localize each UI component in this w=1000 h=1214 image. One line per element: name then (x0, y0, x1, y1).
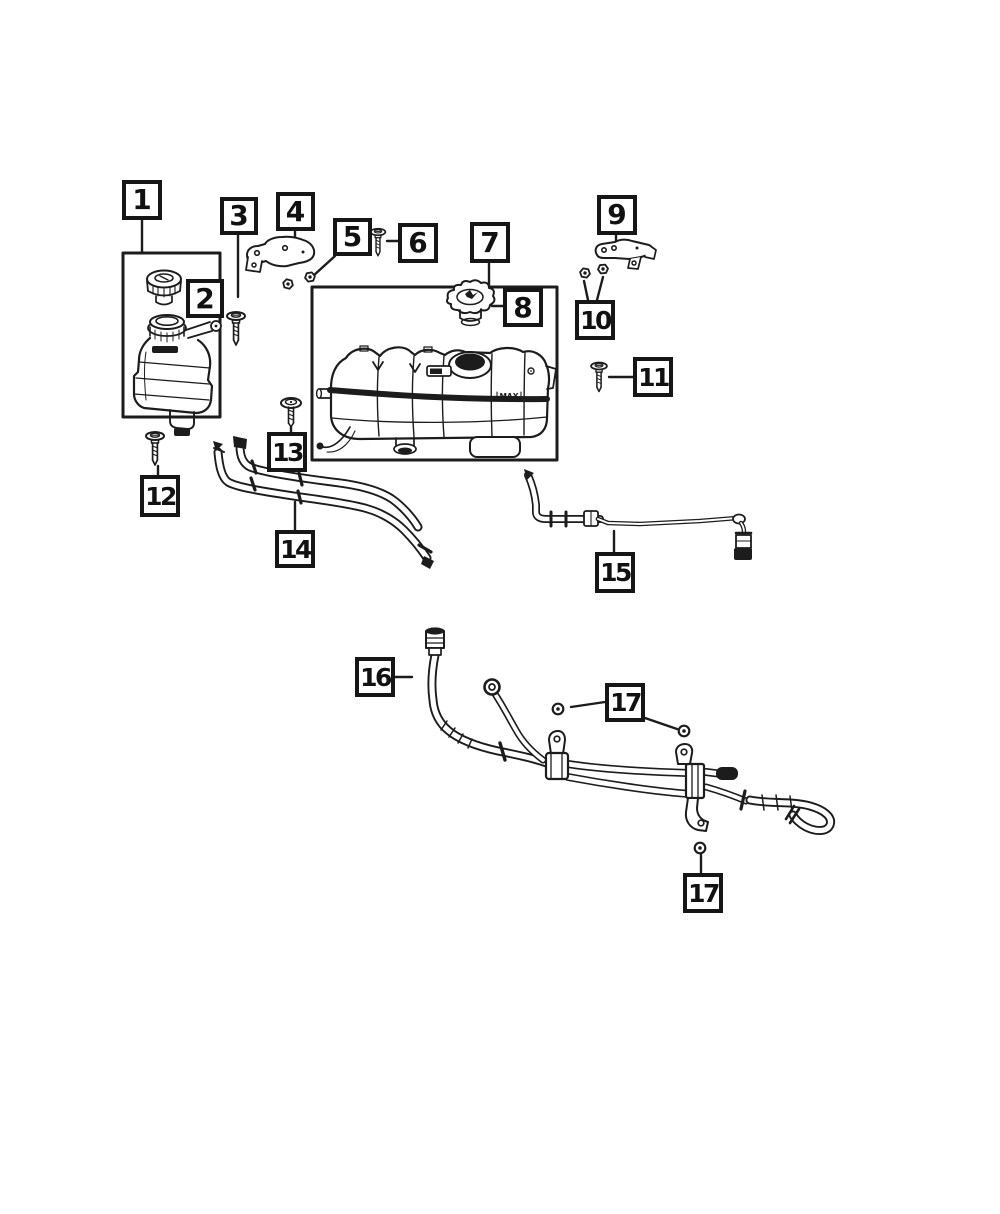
tank-max-label: MAX (499, 392, 518, 401)
callout-box-8[interactable]: 8 (503, 288, 543, 327)
callout-box-14[interactable]: 14 (275, 530, 315, 568)
callout-box-11[interactable]: 11 (633, 357, 673, 397)
callout-box-3[interactable]: 3 (220, 197, 258, 235)
callout-box-2[interactable]: 2 (186, 279, 224, 318)
callout-box-17a[interactable]: 17 (605, 683, 645, 722)
reservoir-cap (147, 271, 181, 305)
mounting-bracket-4 (246, 237, 314, 272)
hose-clamp-block-center (546, 731, 568, 779)
vent-hose-15 (524, 469, 752, 560)
flange-nuts-10 (579, 264, 608, 278)
callout-box-9[interactable]: 9 (597, 195, 637, 235)
hose-assembly-16 (426, 627, 831, 831)
callout-box-17b[interactable]: 17 (683, 873, 723, 913)
hose-assembly-14 (213, 436, 434, 569)
callout-box-4[interactable]: 4 (276, 192, 315, 231)
callout-box-5[interactable]: 5 (333, 218, 372, 256)
screw-6 (371, 229, 386, 256)
pressure-cap (447, 280, 494, 325)
callout-box-12[interactable]: 12 (140, 475, 180, 517)
screw-12 (146, 432, 164, 465)
callout-box-6[interactable]: 6 (398, 223, 438, 263)
screw-3 (227, 312, 245, 345)
grommet-17-a (553, 704, 564, 715)
parts-diagram-page: MAX (0, 0, 1000, 1214)
expansion-tank: MAX (317, 346, 557, 457)
callout-box-1[interactable]: 1 (122, 180, 162, 220)
callout-box-7[interactable]: 7 (470, 222, 510, 263)
hose-clamp-block-right (676, 744, 708, 831)
callout-box-16[interactable]: 16 (355, 657, 395, 697)
callout-box-10[interactable]: 10 (575, 300, 615, 340)
leader-5 (313, 256, 335, 276)
callout-box-13[interactable]: 13 (267, 432, 307, 472)
screw-11 (591, 362, 607, 391)
grommet-17-b (679, 726, 690, 737)
push-pin-13 (281, 398, 301, 427)
grommet-17-c (695, 843, 706, 854)
leader-10 (584, 277, 603, 300)
callout-box-15[interactable]: 15 (595, 552, 635, 593)
